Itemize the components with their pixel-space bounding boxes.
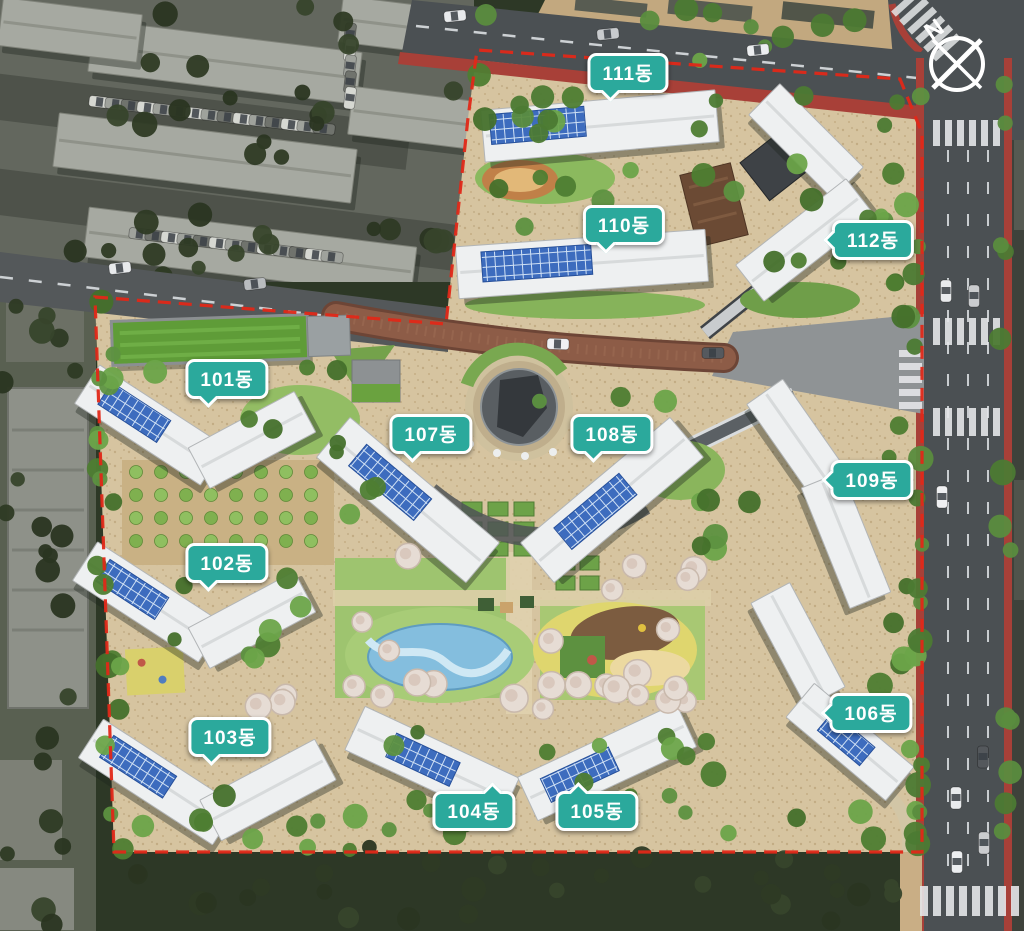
building-label-108: 108동 [570,414,653,454]
left-neighborhood [0,282,96,931]
label-text: 106동 [844,704,897,725]
building-label-102: 102동 [185,543,268,583]
label-text: 109동 [845,471,898,492]
building-label-109: 109동 [830,460,913,500]
building-label-111: 111동 [587,53,668,93]
service-ramp [352,360,400,402]
building-label-101: 101동 [185,359,268,399]
label-text: 112동 [847,231,899,252]
building-label-103: 103동 [188,717,271,757]
building-label-107: 107동 [389,414,472,454]
building-label-104: 104동 [432,791,515,831]
site-plan-image: N 101동 102동 103동 104동 105동 106동 107동 108… [0,0,1024,931]
label-text: 104동 [447,802,500,823]
building-label-105: 105동 [555,791,638,831]
label-text: 105동 [570,802,623,823]
building-label-110: 110동 [583,205,665,245]
building-label-112: 112동 [832,220,914,260]
building-label-106: 106동 [829,693,912,733]
